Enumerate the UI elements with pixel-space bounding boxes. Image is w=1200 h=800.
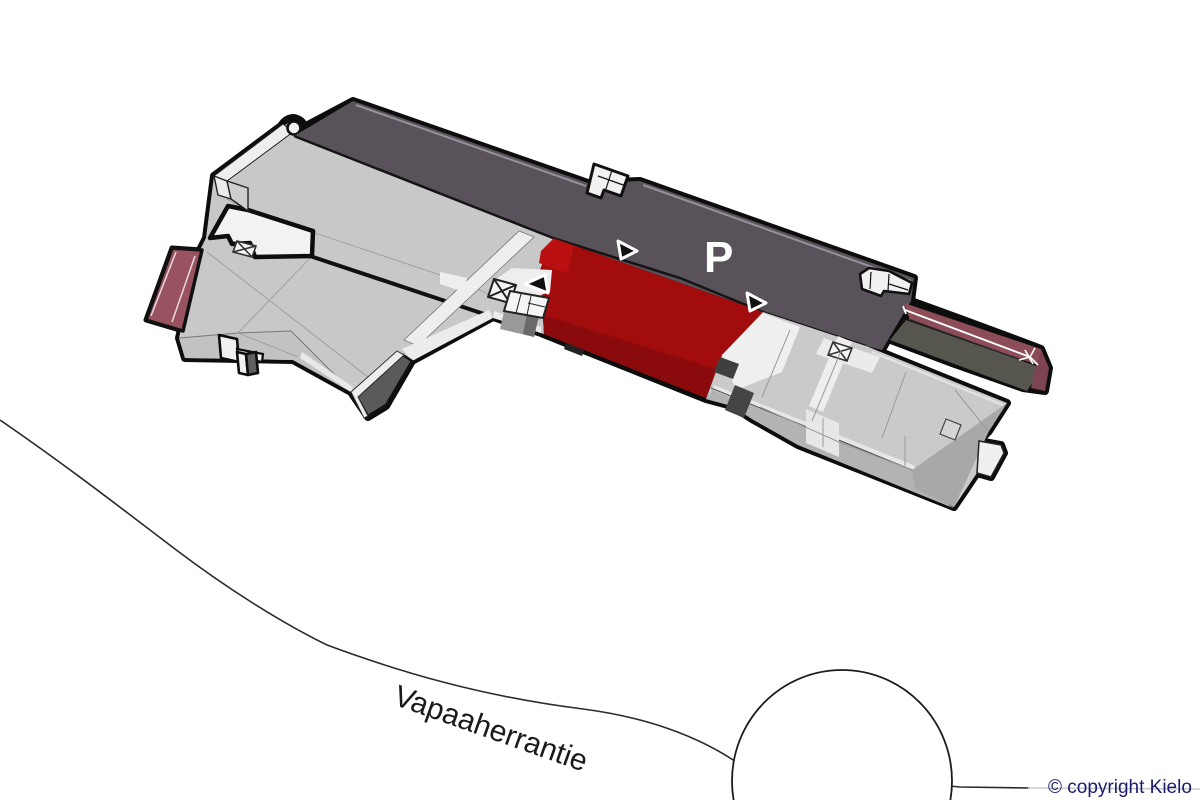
svg-text:© copyright Kielo: © copyright Kielo — [1048, 777, 1192, 798]
svg-text:P: P — [704, 233, 733, 282]
svg-text:Vapaaherrantie: Vapaaherrantie — [390, 679, 592, 778]
